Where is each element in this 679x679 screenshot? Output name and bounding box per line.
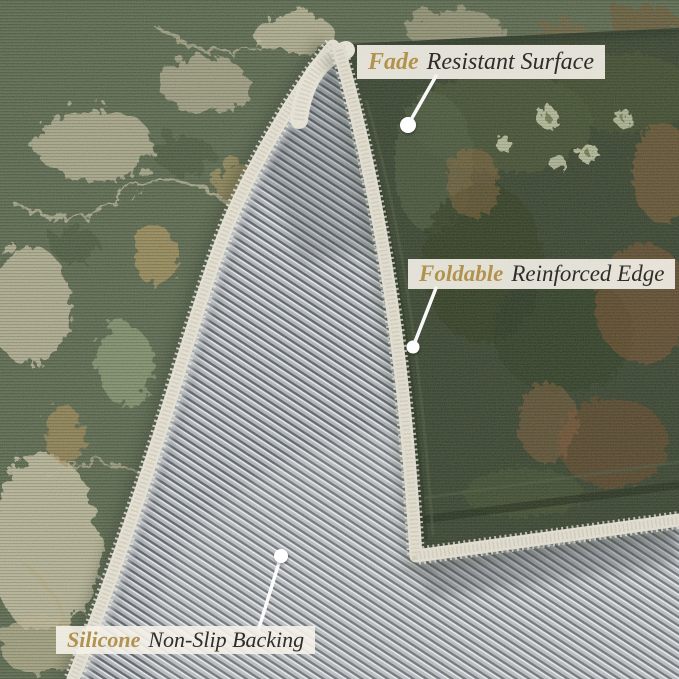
- callout-text: Non-Slip Backing: [148, 627, 304, 653]
- callout-dot-foldable: [407, 341, 420, 354]
- callout-silicone-non-slip-backing: Silicone Non-Slip Backing: [56, 626, 315, 654]
- callout-dot-fade: [400, 117, 416, 133]
- callout-fade-resistant-surface: Fade Resistant Surface: [357, 45, 605, 79]
- rug-photo: [0, 0, 679, 679]
- product-image: Fade Resistant Surface Foldable Reinforc…: [0, 0, 679, 679]
- callout-keyword: Fade: [368, 49, 419, 76]
- callout-keyword: Foldable: [419, 261, 503, 287]
- callout-dot-silicone: [274, 549, 288, 563]
- callout-text: Resistant Surface: [427, 49, 594, 76]
- callout-text: Reinforced Edge: [511, 261, 664, 287]
- callout-foldable-reinforced-edge: Foldable Reinforced Edge: [408, 259, 675, 289]
- callout-keyword: Silicone: [67, 627, 140, 653]
- grain-overlay-dark: [0, 0, 679, 679]
